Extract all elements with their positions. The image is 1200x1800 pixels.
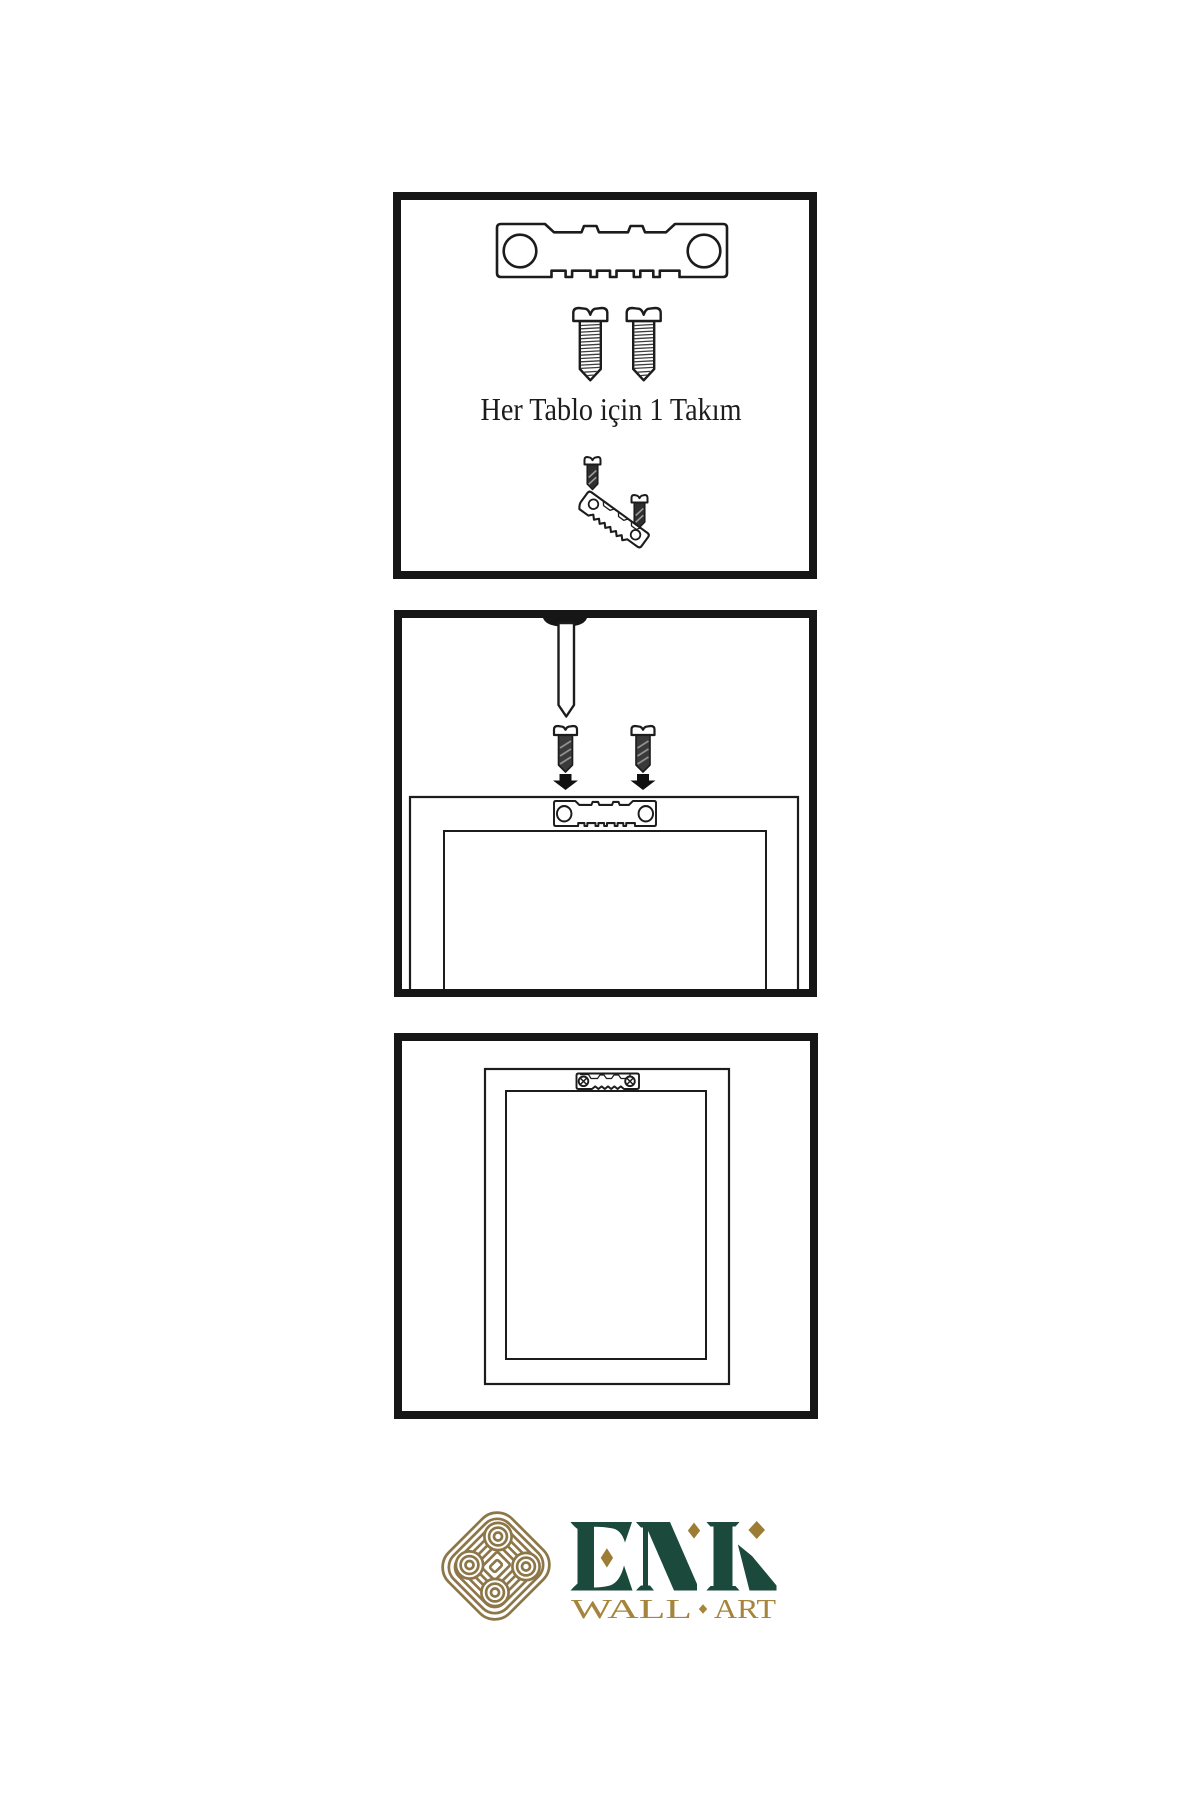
svg-text:ART: ART bbox=[714, 1594, 777, 1624]
svg-text:Her Tablo için 1 Takım: Her Tablo için 1 Takım bbox=[481, 391, 742, 427]
svg-text:WALL: WALL bbox=[571, 1594, 692, 1624]
